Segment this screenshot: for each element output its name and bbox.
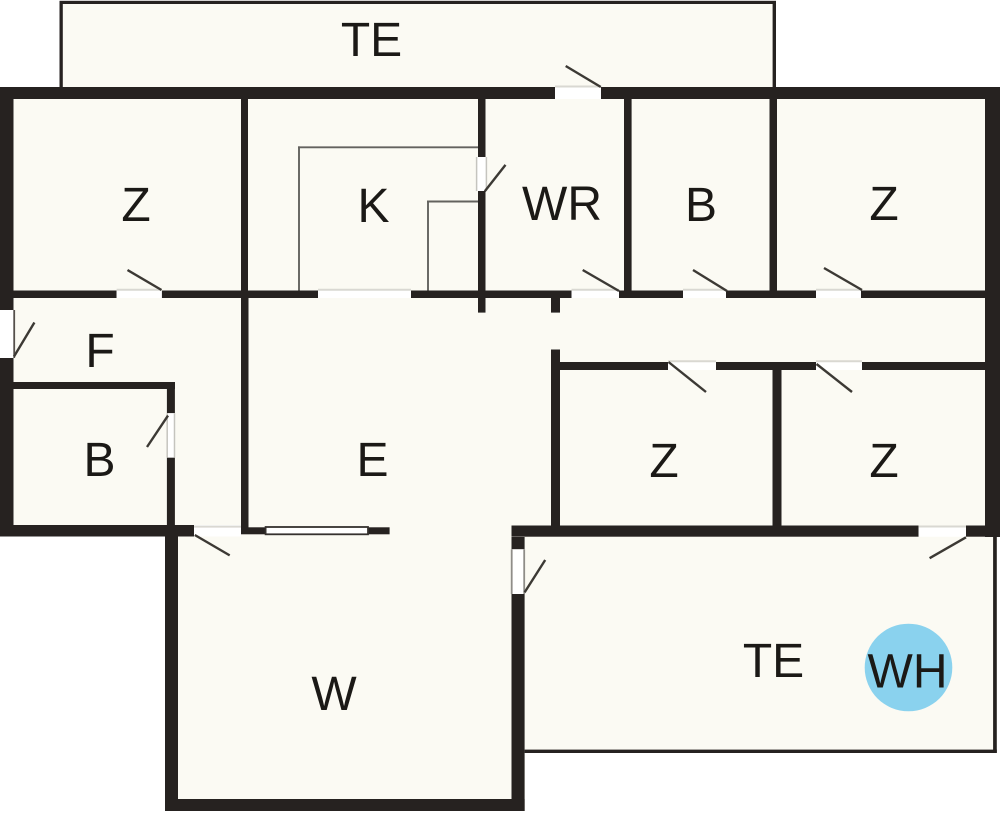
svg-text:K: K	[357, 180, 389, 233]
svg-text:B: B	[83, 434, 115, 487]
svg-text:E: E	[356, 434, 388, 487]
svg-text:W: W	[311, 668, 357, 721]
svg-text:WH: WH	[868, 646, 948, 699]
svg-text:Z: Z	[121, 179, 150, 232]
svg-text:Z: Z	[869, 178, 898, 231]
svg-text:B: B	[685, 179, 717, 232]
svg-text:F: F	[85, 325, 114, 378]
svg-text:Z: Z	[869, 435, 898, 488]
svg-text:TE: TE	[743, 635, 804, 688]
svg-text:TE: TE	[341, 14, 402, 67]
svg-text:WR: WR	[522, 178, 602, 231]
svg-text:Z: Z	[649, 435, 678, 488]
